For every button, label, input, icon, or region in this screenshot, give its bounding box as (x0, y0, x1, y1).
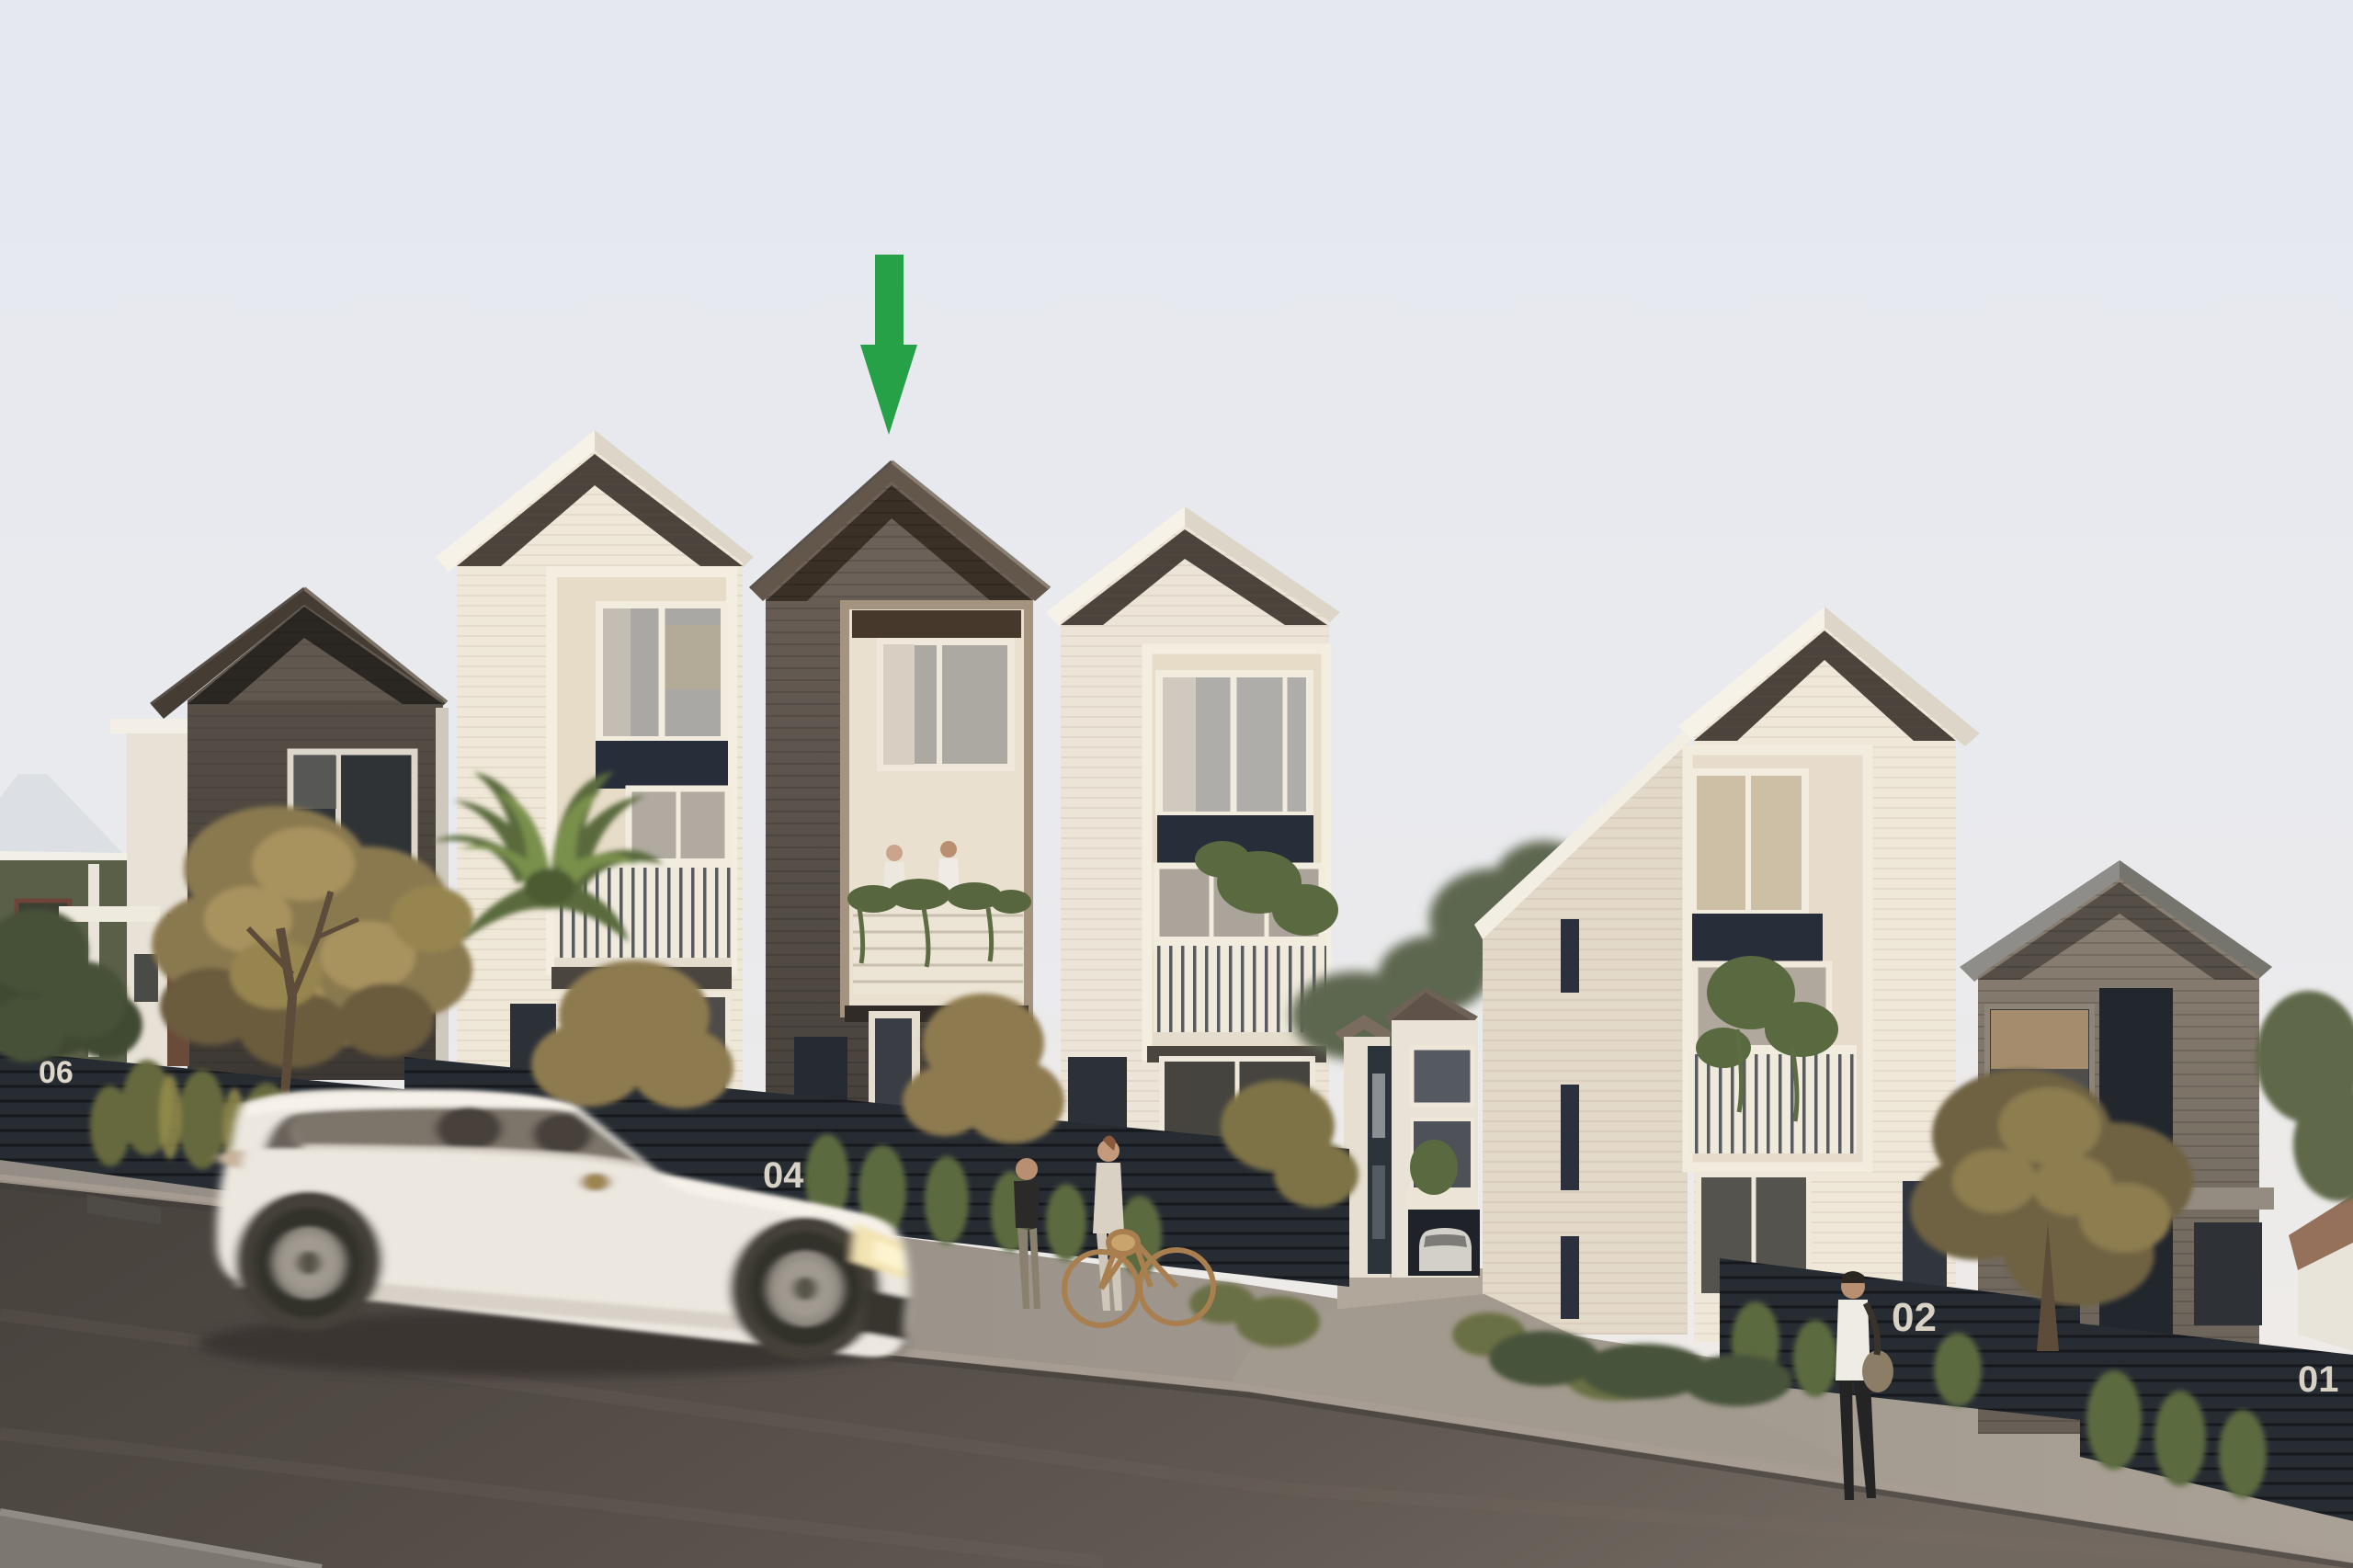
svg-text:06: 06 (39, 1055, 74, 1090)
svg-text:02: 02 (1892, 1295, 1937, 1340)
svg-text:04: 04 (763, 1155, 804, 1196)
svg-text:01: 01 (2298, 1359, 2339, 1400)
